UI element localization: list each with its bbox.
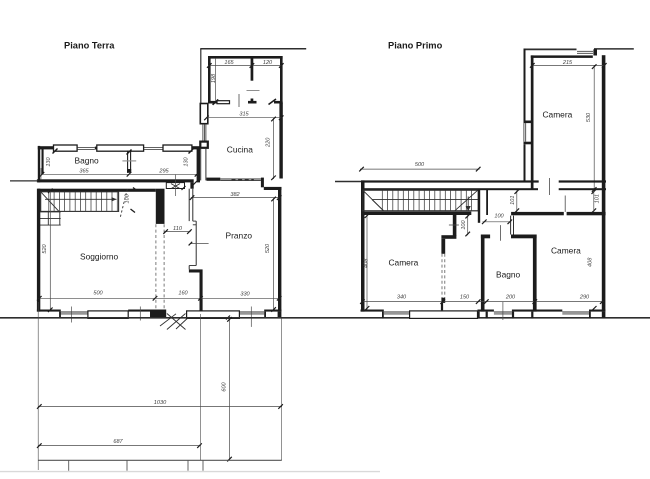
svg-text:295: 295 bbox=[158, 169, 169, 175]
svg-text:220: 220 bbox=[266, 137, 272, 148]
svg-text:520: 520 bbox=[265, 243, 271, 253]
svg-text:130: 130 bbox=[184, 156, 190, 166]
svg-text:110: 110 bbox=[173, 226, 183, 232]
svg-text:100: 100 bbox=[494, 213, 504, 219]
svg-text:315: 315 bbox=[239, 112, 249, 118]
svg-text:Camera: Camera bbox=[389, 258, 419, 268]
svg-text:100: 100 bbox=[124, 193, 130, 203]
svg-text:Piano Primo: Piano Primo bbox=[388, 41, 443, 51]
svg-text:365: 365 bbox=[79, 169, 89, 175]
svg-text:290: 290 bbox=[579, 295, 590, 301]
svg-text:530: 530 bbox=[586, 112, 592, 122]
svg-text:Piano Terra: Piano Terra bbox=[64, 41, 115, 51]
svg-text:687: 687 bbox=[113, 439, 123, 445]
svg-text:520: 520 bbox=[42, 243, 48, 253]
svg-text:101: 101 bbox=[595, 194, 601, 203]
svg-text:101: 101 bbox=[510, 196, 516, 205]
svg-text:Bagno: Bagno bbox=[496, 270, 521, 280]
svg-text:500: 500 bbox=[415, 162, 425, 168]
svg-text:408: 408 bbox=[363, 258, 369, 268]
svg-text:Camera: Camera bbox=[551, 246, 581, 256]
svg-text:600: 600 bbox=[222, 381, 228, 391]
svg-text:Pranzo: Pranzo bbox=[226, 231, 253, 241]
svg-text:165: 165 bbox=[224, 60, 234, 66]
svg-text:150: 150 bbox=[460, 295, 470, 301]
svg-text:408: 408 bbox=[588, 257, 594, 267]
svg-text:120: 120 bbox=[263, 60, 273, 66]
svg-text:Soggiorno: Soggiorno bbox=[80, 252, 119, 262]
svg-text:340: 340 bbox=[397, 295, 407, 301]
svg-text:130: 130 bbox=[46, 156, 52, 166]
svg-text:Bagno: Bagno bbox=[75, 156, 100, 166]
svg-text:Cucina: Cucina bbox=[227, 145, 253, 155]
svg-text:198: 198 bbox=[211, 73, 217, 83]
svg-text:160: 160 bbox=[178, 290, 188, 296]
svg-text:330: 330 bbox=[240, 291, 250, 297]
svg-text:215: 215 bbox=[562, 60, 573, 66]
svg-text:1030: 1030 bbox=[154, 400, 167, 406]
svg-text:Camera: Camera bbox=[543, 110, 573, 120]
svg-text:500: 500 bbox=[93, 290, 103, 296]
svg-text:382: 382 bbox=[230, 192, 240, 198]
svg-text:200: 200 bbox=[505, 295, 516, 301]
svg-text:100: 100 bbox=[461, 219, 467, 229]
